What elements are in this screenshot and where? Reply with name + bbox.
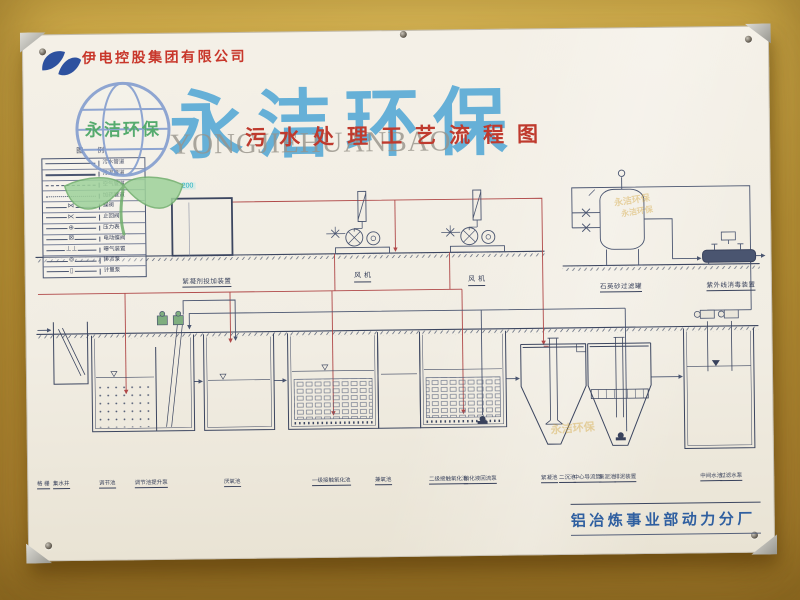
legend-row: 计量泵 (44, 265, 146, 277)
tank-label: 过滤水泵 (720, 471, 742, 481)
blower-label: 风 机 (468, 274, 486, 286)
tank-label: 排泥装置 (614, 472, 636, 482)
bar-screen-well (53, 322, 88, 384)
sand-filter-label: 石英砂过滤罐 (600, 280, 642, 292)
tank-label: 硝化液回流泵 (464, 474, 497, 484)
tank-label: 絮凝池 (541, 473, 558, 483)
tank-label: 厌氧池 (224, 477, 241, 487)
legend-label: 排污泵 (100, 257, 146, 263)
anaerobic-tank (203, 334, 274, 431)
tank-label: 兼氧池 (375, 475, 392, 485)
watermark-logo-text: 永洁环保 (84, 119, 161, 140)
tank-label: 格 栅 (37, 479, 50, 489)
tank-label: 二级接触氧化池 (429, 474, 468, 484)
page-title: 污水处理工艺流程图 (245, 118, 551, 152)
tank-label: 中间水池 (700, 471, 722, 481)
sand-filter-vessel (572, 170, 645, 266)
legend-label: 曝气装置 (99, 247, 145, 253)
tank-label: 集泥池 (599, 472, 616, 482)
blower-label: 风 机 (354, 270, 372, 282)
tank-label: 集水井 (53, 479, 70, 489)
uv-device-label: 紫外线消毒装置 (706, 279, 755, 291)
facultative-tank (377, 332, 420, 429)
equalization-tank (91, 311, 194, 432)
clarifier-cone-tank-2 (588, 337, 652, 446)
tank-label: 调节池提升泵 (135, 478, 168, 488)
photo-of-wall-poster: { "poster": { "company_name": "伊电控股集团有限公… (0, 0, 800, 600)
dosing-device-label: 絮凝剂投加装置 (182, 275, 231, 287)
poster: 伊电控股集团有限公司 污水处理工艺流程图 永洁环保 YONGJIEHUANBAO… (22, 25, 775, 561)
tank-label: 调节池 (99, 478, 116, 488)
tank-label: 中心导流筒 (573, 473, 601, 483)
watermark-globe-leaf-logo: 永洁环保 (55, 67, 192, 241)
legend-label: 计量泵 (100, 268, 146, 274)
footer-block: 铝冶炼事业部动力分厂 (571, 502, 761, 536)
plant-name: 铝冶炼事业部动力分厂 (571, 508, 761, 531)
metering-pump-icon (44, 267, 100, 277)
sewage-pump-icon (44, 256, 100, 266)
tank-label: 一级接触氧化池 (312, 476, 351, 486)
uv-disinfection-device (702, 232, 755, 265)
aerator-icon (43, 245, 99, 255)
